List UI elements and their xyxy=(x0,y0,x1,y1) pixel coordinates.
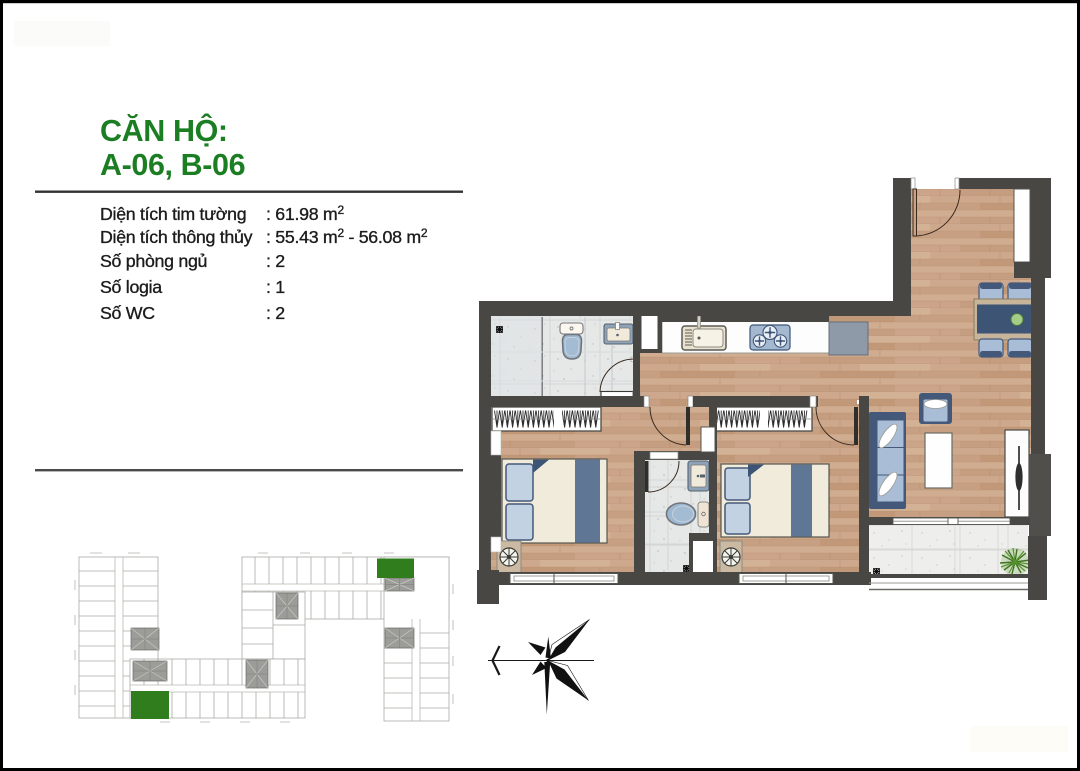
svg-text:: 2: : 2 xyxy=(266,251,285,271)
svg-text:: 1: : 1 xyxy=(266,277,285,297)
svg-text:: 2: : 2 xyxy=(266,303,285,323)
svg-text:A-06, B-06: A-06, B-06 xyxy=(100,148,245,182)
svg-text:: 61.98 m2: : 61.98 m2 xyxy=(266,203,344,224)
svg-text:Số WC: Số WC xyxy=(100,303,155,323)
svg-text:Số phòng ngủ: Số phòng ngủ xyxy=(100,251,207,271)
svg-text:: 55.43 m2 - 56.08 m2: : 55.43 m2 - 56.08 m2 xyxy=(266,226,428,247)
svg-text:Diện tích tim tường: Diện tích tim tường xyxy=(100,204,246,224)
svg-text:Diện tích thông thủy: Diện tích thông thủy xyxy=(100,227,253,247)
svg-text:CĂN HỘ:: CĂN HỘ: xyxy=(100,112,228,148)
svg-text:Số logia: Số logia xyxy=(100,277,162,297)
